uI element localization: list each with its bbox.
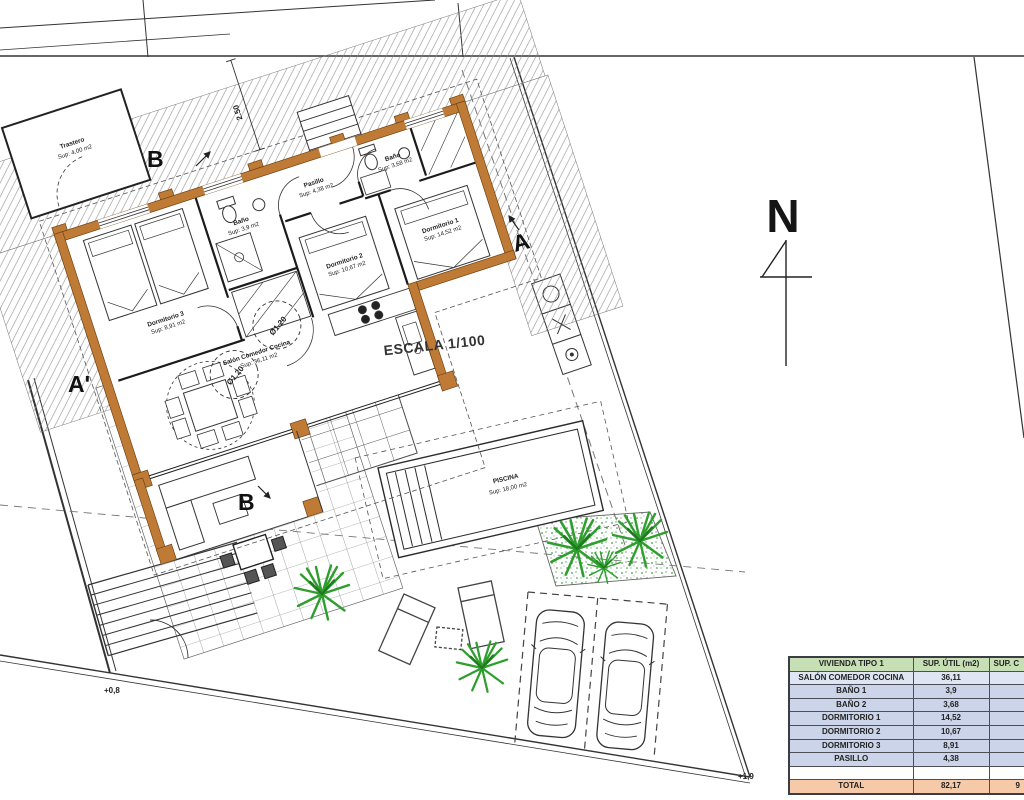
section-marker-b-bottom: B bbox=[238, 489, 255, 515]
table-row: DORMITORIO 114,52 bbox=[789, 712, 1024, 726]
north-arrow: N bbox=[760, 190, 812, 366]
section-marker-a-prime: A' bbox=[68, 371, 90, 397]
table-row: BAÑO 23,68 bbox=[789, 698, 1024, 712]
areas-table-header: VIVIENDA TIPO 1 SUP. ÚTIL (m2) SUP. C bbox=[789, 657, 1024, 671]
level-patio: +0,8 bbox=[104, 686, 120, 695]
table-header-name: VIVIENDA TIPO 1 bbox=[789, 657, 913, 671]
north-letter: N bbox=[766, 190, 799, 242]
table-row-empty bbox=[789, 766, 1024, 780]
table-row-total: TOTAL82,179 bbox=[789, 780, 1024, 794]
table-row: SALÓN COMEDOR COCINA36,11 bbox=[789, 671, 1024, 685]
areas-table: VIVIENDA TIPO 1 SUP. ÚTIL (m2) SUP. C SA… bbox=[788, 656, 1024, 795]
level-street: +1,9 bbox=[738, 772, 754, 781]
table-row: BAÑO 13,9 bbox=[789, 685, 1024, 699]
site-plan-page: PISCINA Sup: 18,00 m2 2.50 bbox=[0, 0, 1024, 800]
section-marker-b-top: B bbox=[147, 146, 164, 172]
table-header-col3: SUP. C bbox=[989, 657, 1024, 671]
car-1 bbox=[524, 609, 589, 739]
table-row: DORMITORIO 38,91 bbox=[789, 739, 1024, 753]
table-row: PASILLO4,38 bbox=[789, 753, 1024, 767]
table-header-util: SUP. ÚTIL (m2) bbox=[913, 657, 989, 671]
parking-bays bbox=[515, 592, 668, 756]
car-2 bbox=[593, 621, 658, 751]
table-row: DORMITORIO 210,67 bbox=[789, 725, 1024, 739]
neighbor-boundary-line bbox=[974, 57, 1024, 438]
sun-loungers bbox=[379, 581, 504, 665]
